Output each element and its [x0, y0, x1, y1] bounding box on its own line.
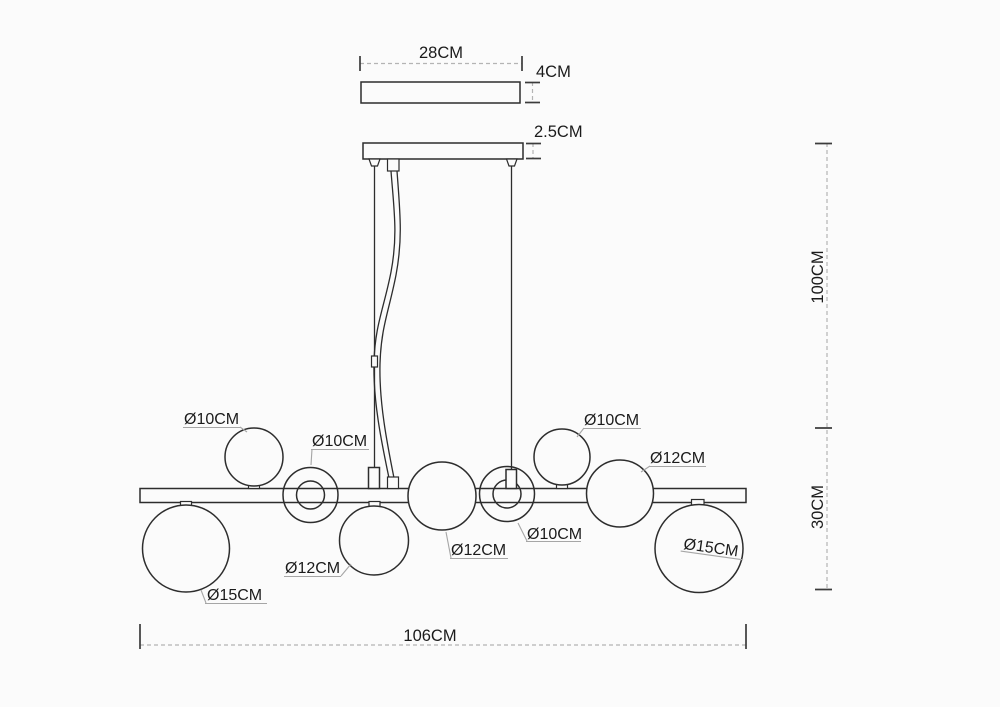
globe-12cm-on-bar-center	[408, 462, 476, 530]
dim-canopy-width: 28CM	[360, 44, 522, 71]
dim-canopy-height-label: 4CM	[536, 63, 571, 81]
dim-drop-height-label: 100CM	[809, 250, 827, 303]
globe-10cm-above-left	[225, 428, 283, 486]
label-globe-12cm-on-bar-center: Ø12CM	[446, 532, 508, 559]
globe-label-text: Ø15CM	[207, 587, 262, 604]
label-globe-15cm-below-left: Ø15CM	[201, 587, 267, 604]
ring-globe-left-outer	[283, 468, 338, 523]
globe-15cm-below-left	[143, 505, 230, 592]
dim-fixture-height-label: 30CM	[809, 485, 827, 529]
cord-fitting-top	[388, 159, 400, 171]
dim-bar-length-label: 106CM	[403, 627, 456, 645]
cable-socket-left	[369, 468, 380, 489]
plate-body	[363, 143, 523, 159]
cable-ferrule	[372, 356, 378, 367]
pendant-lamp-dimension-drawing: 28CM 4CM 2.5CM	[0, 0, 1000, 707]
globe-label-text: Ø12CM	[451, 542, 506, 559]
ceiling-canopy	[361, 82, 520, 103]
canopy-body	[361, 82, 520, 103]
mounting-plate	[363, 143, 523, 171]
cable-socket-right	[506, 470, 517, 489]
dim-plate-height: 2.5CM	[526, 123, 583, 159]
globe-label-text: Ø10CM	[527, 526, 582, 543]
cord-fitting-bottom	[388, 477, 399, 489]
label-globe-10cm-above-right: Ø10CM	[577, 412, 641, 437]
globe-label-text: Ø10CM	[184, 411, 239, 428]
globe-10cm-above-right	[534, 429, 590, 485]
suspension	[372, 166, 512, 478]
label-globe-10cm-above-left: Ø10CM	[183, 411, 247, 432]
dim-plate-height-label: 2.5CM	[534, 123, 583, 141]
ring-globe-left-inner	[297, 481, 325, 509]
cable-gripper-right	[507, 159, 518, 166]
label-ring-globe-left: Ø10CM	[311, 433, 369, 465]
cable-gripper-left	[369, 159, 380, 166]
label-ring-globe-right: Ø10CM	[518, 523, 582, 543]
globe-label-text: Ø10CM	[584, 412, 639, 429]
globe-label-text: Ø10CM	[312, 433, 367, 450]
label-globe-12cm-below-mid: Ø12CM	[284, 560, 351, 577]
dim-canopy-height: 4CM	[525, 63, 571, 103]
dim-canopy-width-label: 28CM	[419, 44, 463, 62]
label-globe-12cm-on-bar-right: Ø12CM	[641, 450, 706, 472]
globe-label-text: Ø12CM	[285, 560, 340, 577]
dim-right-heights: 100CM 30CM	[809, 143, 832, 590]
globe-label-text: Ø12CM	[650, 450, 705, 467]
diagram-canvas: 28CM 4CM 2.5CM	[0, 0, 1000, 707]
dim-bar-length: 106CM	[140, 624, 746, 649]
power-cord	[380, 171, 400, 478]
